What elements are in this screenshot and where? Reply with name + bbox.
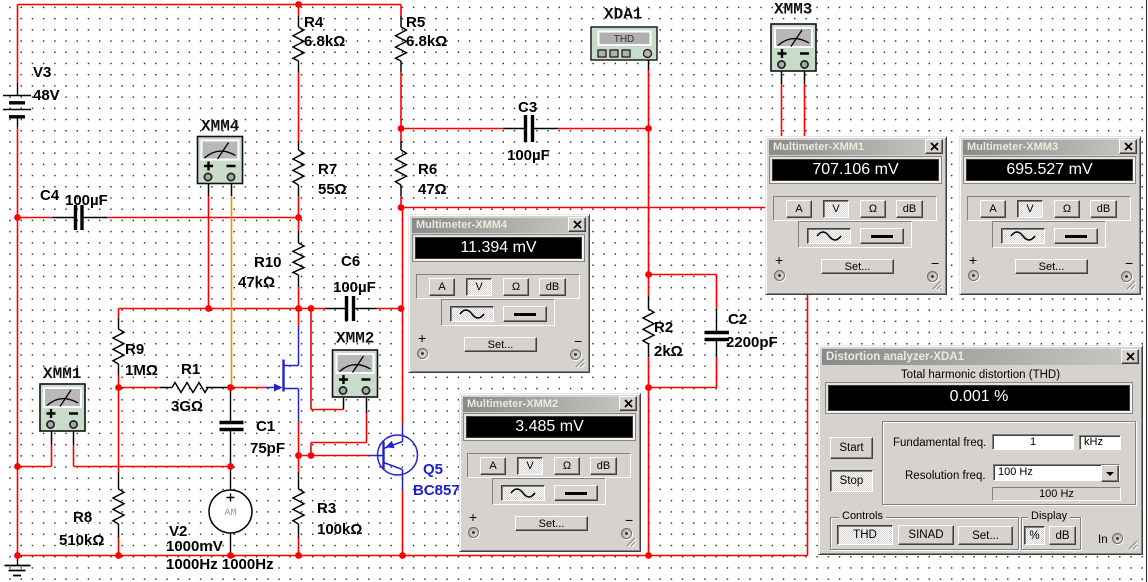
svg-text:R9: R9 (125, 341, 144, 358)
svg-text:XMM2: XMM2 (336, 330, 374, 348)
svg-text:BC857: BC857 (413, 482, 460, 499)
svg-text:Q5: Q5 (423, 461, 443, 478)
svg-text:XMM1: XMM1 (43, 365, 81, 383)
svg-text:100µF: 100µF (65, 192, 108, 209)
svg-text:2kΩ: 2kΩ (654, 343, 683, 360)
svg-text:AM: AM (224, 508, 236, 519)
svg-text:100µF: 100µF (333, 279, 376, 296)
svg-text:R3: R3 (317, 500, 336, 517)
svg-text:1MΩ: 1MΩ (125, 362, 158, 379)
svg-text:R1: R1 (181, 361, 200, 378)
svg-text:6.8kΩ: 6.8kΩ (304, 33, 345, 50)
svg-text:48V: 48V (33, 87, 60, 104)
svg-text:R7: R7 (318, 161, 337, 178)
svg-text:R2: R2 (654, 319, 673, 336)
svg-text:1000mV: 1000mV (166, 538, 223, 555)
svg-text:R5: R5 (406, 14, 425, 31)
svg-text:C2: C2 (728, 311, 747, 328)
svg-text:C4: C4 (40, 187, 60, 204)
svg-text:47kΩ: 47kΩ (238, 274, 275, 291)
svg-text:XDA1: XDA1 (604, 6, 642, 24)
svg-text:XMM3: XMM3 (774, 1, 812, 19)
svg-text:55Ω: 55Ω (318, 181, 347, 198)
svg-text:C6: C6 (341, 253, 360, 270)
svg-text:510kΩ: 510kΩ (59, 532, 104, 549)
svg-text:R10: R10 (254, 254, 282, 271)
svg-text:THD: THD (614, 34, 635, 45)
svg-text:1000Hz 1000Hz: 1000Hz 1000Hz (166, 556, 274, 573)
svg-text:75pF: 75pF (250, 440, 285, 457)
svg-text:R6: R6 (418, 161, 437, 178)
svg-text:3GΩ: 3GΩ (171, 398, 203, 415)
svg-text:C1: C1 (256, 418, 275, 435)
svg-text:C3: C3 (518, 99, 537, 116)
svg-text:XMM4: XMM4 (201, 118, 240, 136)
svg-text:R8: R8 (73, 509, 92, 526)
svg-text:2200pF: 2200pF (726, 334, 778, 351)
svg-text:47Ω: 47Ω (418, 181, 447, 198)
svg-text:100kΩ: 100kΩ (317, 521, 362, 538)
svg-text:6.8kΩ: 6.8kΩ (406, 33, 447, 50)
svg-text:R4: R4 (304, 14, 324, 31)
svg-text:V3: V3 (33, 64, 51, 81)
svg-text:100µF: 100µF (507, 147, 550, 164)
